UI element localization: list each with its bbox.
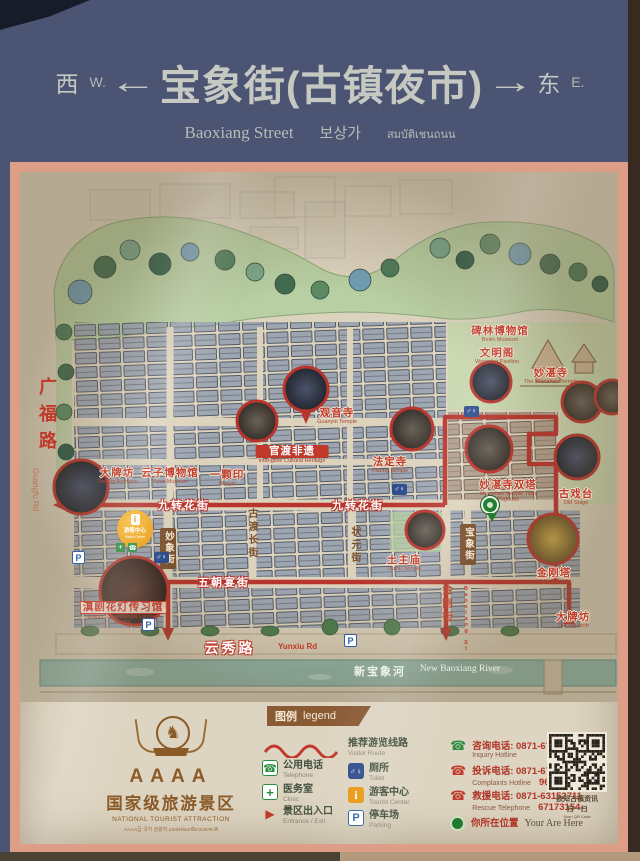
illustrated-map: 广福路 Guangfu Rd 古渡长街 状元街 妙象街 金刚街 宝象街 Baox…: [20, 172, 618, 702]
legend-tourist-center: i 游客中心Tourist Center: [348, 787, 409, 806]
sign-photo: 西 W. ← 宝象街(古镇夜市) → 东 E. Baoxiang Street …: [0, 0, 640, 861]
river-name-zh: 新宝象河: [354, 663, 406, 679]
poi-vajra-pagoda: 金刚塔Vajra Pagoda: [536, 568, 572, 585]
emblem-subtitle: AAAA급 국가 관광지 แหล่งท่องเที่ยวแห่งชาติ: [95, 825, 248, 833]
emblem-grade: AAAA: [86, 766, 256, 788]
east-label-en: E.: [571, 74, 584, 90]
road-yunxiu-en: Yunxiu Rd: [278, 642, 317, 651]
parking-icon: P: [344, 634, 357, 647]
legend-banner: 图例 legend: [267, 706, 371, 726]
street-title-kr: 보상가: [320, 122, 361, 143]
street-title: 宝象街(古镇夜市): [160, 52, 483, 112]
street-baoxiang: 宝象街: [460, 524, 476, 565]
qr-pattern: [549, 734, 605, 790]
road-yunxiu: 云秀路: [205, 638, 256, 658]
phone-icon: ☎: [128, 543, 137, 552]
parking-icon: P: [142, 618, 155, 631]
legend-parking: P 停车场Parking: [348, 810, 399, 829]
qr-code: [547, 732, 607, 792]
clinic-icon: +: [116, 543, 125, 552]
poi-tuzhu-temple: 土主庙Tuzhu Temple: [385, 555, 422, 572]
entrance-arrow-icon: ▶: [262, 806, 278, 822]
info-icon: i: [131, 514, 140, 525]
photo-edge-bottom-right: [340, 852, 640, 861]
parking-icon: P: [72, 551, 85, 564]
legend-title-en: legend: [303, 710, 336, 722]
legend-section: ♞ AAAA 国家级旅游景区 NATIONAL TOURIST ATTRACTI…: [20, 702, 618, 844]
map-board-frame: 广福路 Guangfu Rd 古渡长街 状元街 妙象街 金刚街 宝象街 Baox…: [10, 162, 628, 854]
street-gudu: 古渡长街: [244, 508, 259, 560]
street-wuchao: 五朝宴街: [198, 574, 250, 590]
legend-toilet: ♂♀ 厕所Toilet: [348, 763, 389, 782]
street-zhuangyuan: 状元街: [347, 526, 362, 565]
legend-clinic: + 医务室Clinic: [262, 784, 313, 803]
poi-guandu-heritage: 官渡非遗Intangible Cultural Heritage: [256, 445, 329, 464]
header-subtitle-row: Baoxiang Street 보상가 สมบัติเชนถนน: [0, 122, 640, 143]
poi-guanyin-temple: 观音寺Guanyin Temple: [315, 408, 358, 425]
toilet-icon: ♂♀: [392, 484, 407, 495]
poi-big-arch-east: 大牌坊The Big Arch: [556, 612, 591, 629]
phone-handset-icon: ☎: [450, 739, 466, 752]
phone-handset-icon: ☎: [450, 789, 466, 802]
poi-beilin-museum: 碑林博物馆Beilin Museum: [471, 326, 529, 343]
street-guangfu: 广福路: [34, 377, 60, 458]
route-squiggle: [262, 740, 342, 758]
street-sign-header: 西 W. ← 宝象街(古镇夜市) → 东 E. Baoxiang Street …: [0, 0, 640, 162]
toilet-icon: ♂♀: [464, 406, 479, 417]
photo-edge-right: [628, 0, 640, 861]
qr-caption-3: Scan QR Code: [550, 814, 604, 819]
poi-big-archway-west: 大牌坊The Big Archway: [94, 468, 139, 485]
street-title-en: Baoxiang Street: [184, 123, 293, 143]
east-label-zh: 东: [537, 65, 561, 99]
legend-telephone: ☎ 公用电话Telephone: [262, 760, 323, 779]
emblem-title-en: NATIONAL TOURIST ATTRACTION: [86, 816, 256, 823]
toilet-icon: ♂♀: [154, 552, 169, 563]
parking-legend-icon: P: [348, 810, 364, 826]
qr-caption-1: 欲知古镇资讯: [547, 794, 607, 804]
street-jiuzhuan-west: 九转花街: [158, 497, 210, 513]
qr-caption-2: 扫一扫: [547, 804, 607, 814]
laurel-left-icon: [135, 717, 156, 755]
telephone-icon: ☎: [262, 760, 278, 776]
visitor-center-zh: 游客中心: [124, 526, 146, 534]
west-label-zh: 西: [56, 65, 80, 99]
toilet-legend-icon: ♂♀: [348, 763, 364, 779]
poi-yunzi-museum: 云子博物馆Yunzi Museum: [141, 468, 199, 485]
header-title-row: 西 W. ← 宝象街(古镇夜市) → 东 E.: [0, 52, 640, 112]
east-arrow-icon: →: [486, 65, 534, 99]
legend-route: 推荐游览线路 Visitor Route: [348, 738, 408, 757]
phone-handset-icon: ☎: [450, 764, 466, 777]
map-paper: 广福路 Guangfu Rd 古渡长街 状元街 妙象街 金刚街 宝象街 Baox…: [20, 172, 618, 844]
info-legend-icon: i: [348, 787, 364, 803]
legend-title-zh: 图例: [275, 708, 297, 724]
you-are-here-pin: [481, 496, 499, 514]
poi-fading-temple: 法定寺Fading Temple: [370, 457, 409, 474]
emblem-title-zh: 国家级旅游景区: [86, 790, 256, 814]
clinic-cross-icon: +: [262, 784, 278, 800]
poi-old-stage: 古戏台Old Stage: [559, 489, 594, 506]
street-jiuzhuan-east: 九转花街: [332, 497, 384, 513]
horse-icon: ♞: [156, 716, 190, 750]
poi-miaozhan-temple: 妙湛寺The Miaozhan Temple: [522, 368, 581, 385]
legend-entrance: ▶ 景区出入口Entrance / Exit: [262, 806, 333, 825]
pin-icon: [450, 816, 465, 831]
emblem-medallion: ♞: [149, 716, 193, 760]
photo-edge-bottom-left: [0, 852, 340, 861]
poi-twin-pagodas: 妙湛寺双塔Miaozhan Temple Twin Pagodas: [466, 480, 550, 504]
visitor-center-en: Visitor Center: [125, 534, 146, 538]
poi-yikeyin: 一颗印Yikeyin: [210, 470, 245, 487]
street-title-th: สมบัติเชนถนน: [387, 125, 456, 143]
west-arrow-icon: ←: [109, 65, 157, 99]
street-baoxiang-en: Baoxiang St: [463, 586, 469, 652]
west-label-en: W.: [90, 74, 106, 90]
poi-wenming-pavilion: 文明阁Wenming Pavilion: [473, 348, 521, 365]
street-guangfu-en: Guangfu Rd: [31, 468, 40, 511]
river-name-en: New Baoxiang River: [420, 664, 500, 674]
emblem-ribbon: [153, 748, 189, 756]
street-jingang: 金刚街: [440, 584, 455, 625]
aaaa-emblem: ♞ AAAA 国家级旅游景区 NATIONAL TOURIST ATTRACTI…: [86, 716, 256, 834]
